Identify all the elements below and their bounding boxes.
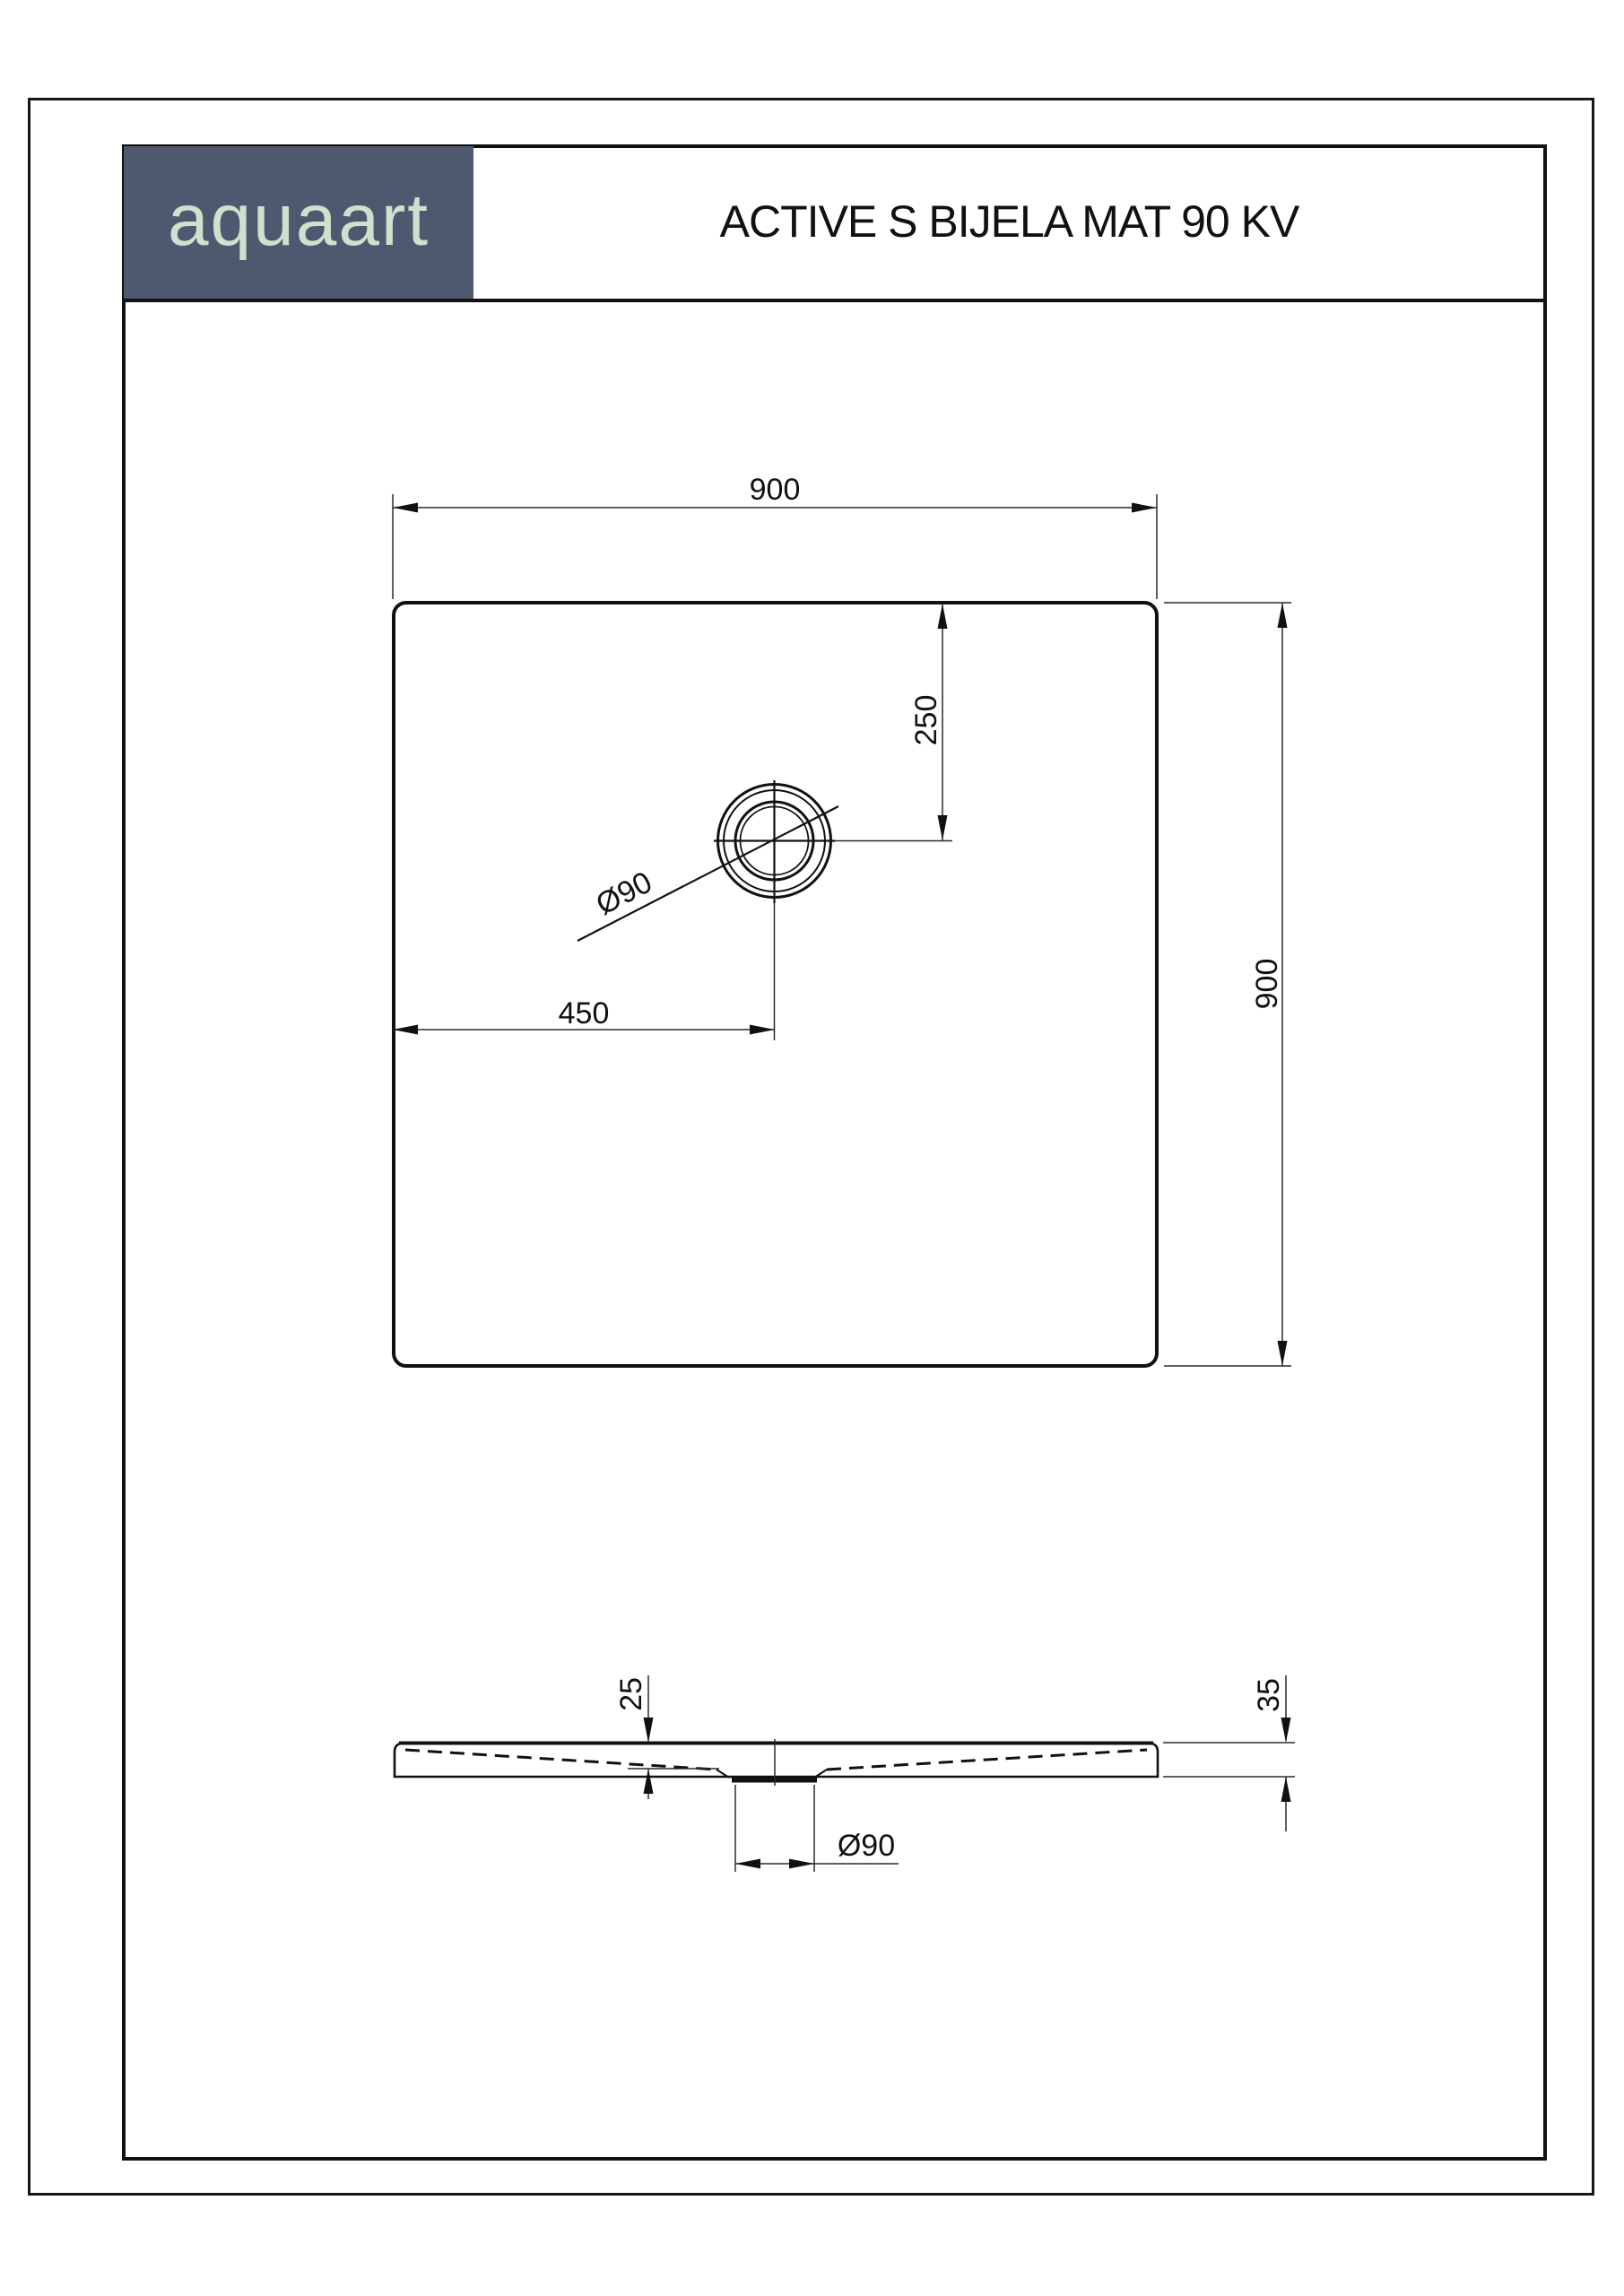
sheet-inner-frame [122, 144, 1547, 2161]
title-block: ACTIVE S BIJELA MAT 90 KV [473, 146, 1545, 300]
drawing-sheet: aquaart ACTIVE S BIJELA MAT 90 KV 900 [0, 0, 1624, 2296]
brand-logo-box: aquaart [124, 146, 473, 300]
drawing-title: ACTIVE S BIJELA MAT 90 KV [720, 196, 1299, 248]
brand-logo: aquaart [168, 184, 430, 263]
